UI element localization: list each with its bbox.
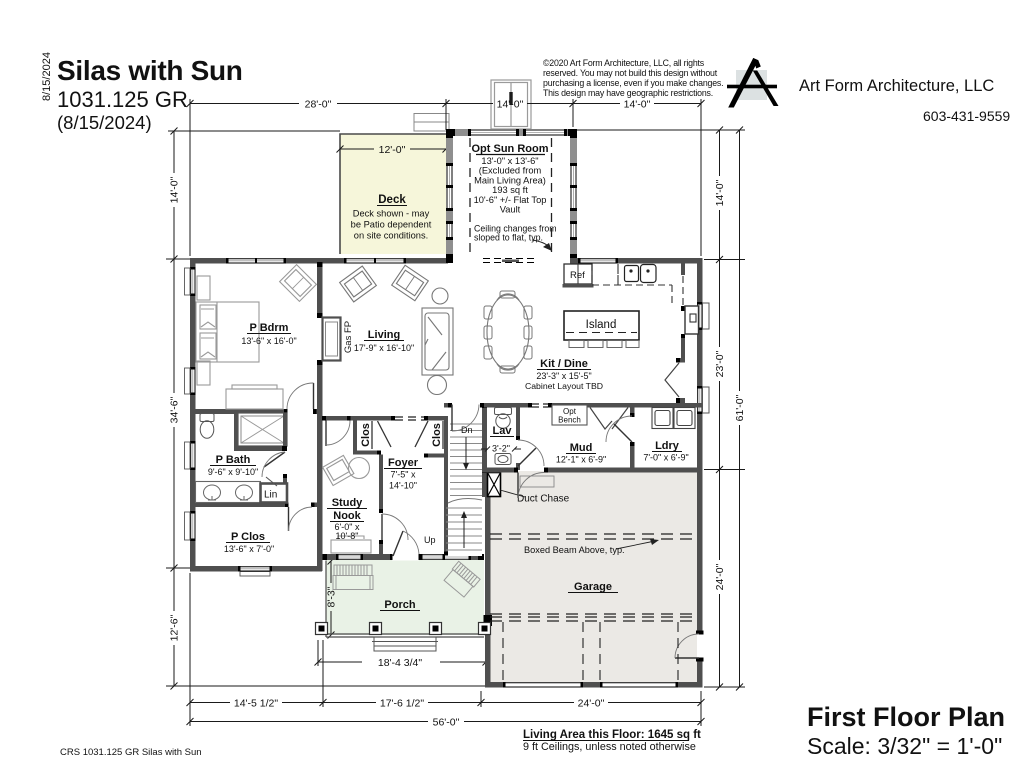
svg-text:7'-0" x 6'-9": 7'-0" x 6'-9" [643,453,688,463]
svg-text:Living Area this Floor: 1645 s: Living Area this Floor: 1645 sq ft [523,729,701,741]
svg-text:Art Form Architecture, LLC: Art Form Architecture, LLC [799,77,994,95]
svg-text:Silas with Sun: Silas with Sun [57,55,243,86]
svg-text:34'-6": 34'-6" [169,396,181,423]
svg-text:14'-0": 14'-0" [714,179,726,206]
svg-text:sloped to flat, typ.: sloped to flat, typ. [474,233,543,243]
svg-text:12'-6": 12'-6" [169,614,181,641]
svg-text:Mud: Mud [570,442,593,454]
svg-text:Up: Up [424,535,436,545]
svg-text:First Floor Plan: First Floor Plan [807,702,1005,732]
svg-text:13'-6" x 16'-0": 13'-6" x 16'-0" [241,336,296,346]
svg-text:23'-0": 23'-0" [714,350,726,377]
svg-text:P Clos: P Clos [231,531,265,543]
svg-text:8/15/2024: 8/15/2024 [41,52,53,101]
svg-text:Lav: Lav [493,425,513,437]
svg-text:17'-6 1/2": 17'-6 1/2" [380,698,425,710]
svg-text:Scale: 3/32" = 1'-0": Scale: 3/32" = 1'-0" [807,733,1002,759]
svg-text:purchasing a license, even if: purchasing a license, even if you make c… [543,78,723,88]
svg-text:13'-6" x 7'-0": 13'-6" x 7'-0" [224,544,274,554]
svg-text:24'-0": 24'-0" [714,563,726,590]
svg-text:Deck shown - may: Deck shown - may [353,209,430,219]
svg-text:14'-10": 14'-10" [389,481,417,491]
svg-text:7'-5" x: 7'-5" x [391,470,416,480]
svg-text:Clos: Clos [360,423,372,447]
svg-text:603-431-9559: 603-431-9559 [923,108,1010,124]
svg-text:Island: Island [586,319,617,331]
svg-text:Living: Living [368,329,400,341]
svg-text:10'-8": 10'-8" [336,531,359,541]
svg-text:28'-0": 28'-0" [305,99,332,111]
svg-text:61'-0": 61'-0" [734,394,746,421]
svg-text:Dn: Dn [461,425,473,435]
svg-text:Deck: Deck [378,194,406,206]
svg-text:56'-0": 56'-0" [433,717,460,729]
svg-text:Lin: Lin [264,490,277,501]
svg-text:14'-0": 14'-0" [624,99,651,111]
svg-text:(Excluded from: (Excluded from [479,166,542,176]
svg-text:12'-0": 12'-0" [379,144,406,156]
svg-text:Porch: Porch [384,599,415,611]
svg-text:CRS 1031.125 GR Silas with Sun: CRS 1031.125 GR Silas with Sun [60,747,202,758]
svg-text:Main Living Area): Main Living Area) [474,175,546,185]
svg-text:reserved. You may not build th: reserved. You may not build this design … [543,68,718,78]
svg-text:9 ft Ceilings, unless noted ot: 9 ft Ceilings, unless noted otherwise [523,741,696,753]
svg-text:Ref: Ref [570,270,585,281]
svg-text:on site conditions.: on site conditions. [354,231,428,241]
svg-text:193 sq ft: 193 sq ft [492,185,528,195]
svg-text:Kit / Dine: Kit / Dine [540,358,588,370]
svg-text:Garage: Garage [574,581,612,593]
svg-text:Gas FP: Gas FP [343,321,354,353]
svg-text:12'-1" x 6'-9": 12'-1" x 6'-9" [556,455,606,465]
svg-text:P Bath: P Bath [216,454,251,466]
svg-text:24'-0": 24'-0" [578,698,605,710]
svg-text:This design may have geographi: This design may have geographic restrict… [543,88,713,98]
svg-text:14'-0": 14'-0" [497,99,524,111]
svg-text:P Bdrm: P Bdrm [250,322,289,334]
svg-text:Ldry: Ldry [655,440,680,452]
svg-text:3'-2": 3'-2" [492,444,510,454]
svg-text:Clos: Clos [431,423,443,447]
svg-text:(8/15/2024): (8/15/2024) [57,112,152,133]
svg-text:23'-3" x 15'-5": 23'-3" x 15'-5" [536,371,591,381]
svg-text:be Patio dependent: be Patio dependent [351,220,432,230]
svg-text:Nook: Nook [333,510,361,522]
svg-text:18'-4 3/4": 18'-4 3/4" [378,657,423,669]
svg-text:Study: Study [332,497,363,509]
svg-text:10'-6" +/- Flat Top: 10'-6" +/- Flat Top [474,195,547,205]
svg-text:Cabinet Layout TBD: Cabinet Layout TBD [525,381,603,391]
svg-text:14'-5 1/2": 14'-5 1/2" [234,698,279,710]
svg-text:Vault: Vault [500,205,521,215]
svg-text:Duct Chase: Duct Chase [517,494,570,505]
svg-text:Opt Sun Room: Opt Sun Room [472,143,549,155]
svg-text:1031.125 GR: 1031.125 GR [57,87,188,112]
svg-text:17'-9" x 16'-10": 17'-9" x 16'-10" [354,343,414,353]
svg-text:9'-6" x 9'-10": 9'-6" x 9'-10" [208,467,258,477]
svg-text:13'-0" x 13'-6": 13'-0" x 13'-6" [481,156,538,166]
svg-text:Boxed Beam Above, typ.: Boxed Beam Above, typ. [524,545,625,555]
svg-text:Bench: Bench [558,416,581,425]
svg-text:Foyer: Foyer [388,457,419,469]
svg-text:14'-0": 14'-0" [169,176,181,203]
svg-text:©2020 Art Form Architecture, L: ©2020 Art Form Architecture, LLC, all ri… [543,58,705,68]
